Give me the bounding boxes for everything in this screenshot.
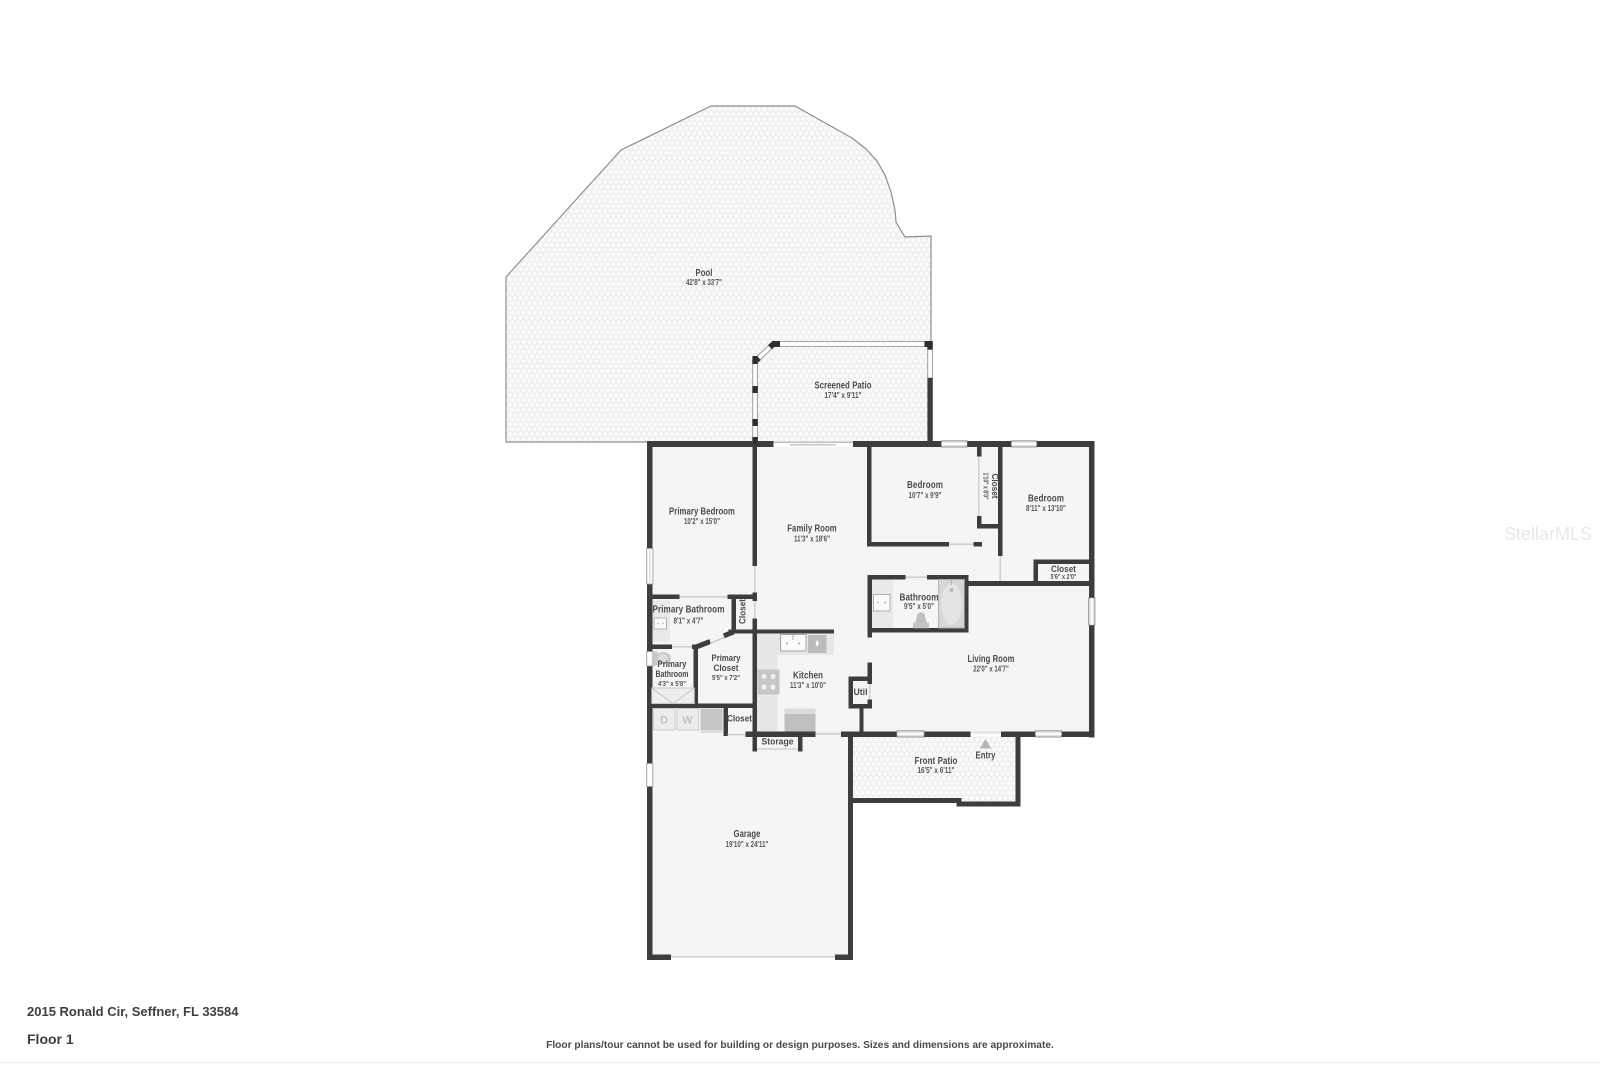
svg-text:19'10" x 24'11": 19'10" x 24'11": [726, 840, 769, 849]
svg-text:Screened Patio: Screened Patio: [815, 380, 872, 391]
svg-text:Storage: Storage: [762, 737, 794, 748]
svg-text:Bathroom: Bathroom: [656, 669, 689, 679]
svg-text:Bedroom: Bedroom: [907, 480, 943, 491]
svg-text:17'4" x 9'11": 17'4" x 9'11": [825, 391, 862, 400]
svg-text:5'5" x 7'2": 5'5" x 7'2": [712, 673, 740, 682]
svg-text:1'10" x 8'0": 1'10" x 8'0": [982, 473, 989, 500]
svg-text:StellarMLS: StellarMLS: [1504, 524, 1592, 544]
svg-text:16'5" x 6'11": 16'5" x 6'11": [918, 766, 955, 775]
svg-text:W: W: [682, 715, 693, 727]
svg-text:9'5" x 5'0": 9'5" x 5'0": [904, 602, 934, 611]
svg-text:42'8" x 33'7": 42'8" x 33'7": [686, 278, 722, 287]
svg-text:11'3" x 10'0": 11'3" x 10'0": [790, 681, 826, 690]
svg-text:Primary Bathroom: Primary Bathroom: [653, 605, 725, 616]
svg-text:Floor 1: Floor 1: [27, 1031, 74, 1047]
svg-text:Bedroom: Bedroom: [1028, 493, 1064, 504]
svg-text:8'1" x 4'7": 8'1" x 4'7": [674, 617, 704, 626]
svg-text:4'3" x 5'8": 4'3" x 5'8": [658, 679, 686, 688]
svg-text:5'6" x 2'0": 5'6" x 2'0": [1051, 574, 1077, 581]
svg-text:22'0" x 14'7": 22'0" x 14'7": [973, 664, 1009, 673]
svg-text:Closet: Closet: [990, 474, 1000, 499]
svg-text:10'7" x 9'9": 10'7" x 9'9": [909, 491, 942, 500]
svg-text:Closet: Closet: [738, 598, 749, 624]
svg-text:Primary: Primary: [658, 659, 687, 669]
svg-text:D: D: [660, 715, 668, 727]
svg-text:Kitchen: Kitchen: [793, 671, 823, 682]
svg-text:Entry: Entry: [976, 750, 996, 761]
svg-text:11'3" x 18'6": 11'3" x 18'6": [794, 535, 830, 544]
svg-text:Floor plans/tour cannot be use: Floor plans/tour cannot be used for buil…: [546, 1040, 1054, 1051]
svg-text:Util: Util: [854, 687, 868, 697]
svg-text:10'2" x 15'0": 10'2" x 15'0": [684, 517, 720, 526]
svg-text:Family Room: Family Room: [787, 523, 837, 534]
svg-text:8'11" x 13'10": 8'11" x 13'10": [1026, 504, 1066, 513]
svg-text:Closet: Closet: [714, 663, 739, 673]
svg-text:Primary: Primary: [712, 653, 741, 663]
svg-text:2015 Ronald Cir, Seffner, FL 3: 2015 Ronald Cir, Seffner, FL 33584: [27, 1004, 239, 1019]
svg-text:Closet: Closet: [727, 714, 753, 725]
svg-text:Garage: Garage: [734, 829, 761, 840]
